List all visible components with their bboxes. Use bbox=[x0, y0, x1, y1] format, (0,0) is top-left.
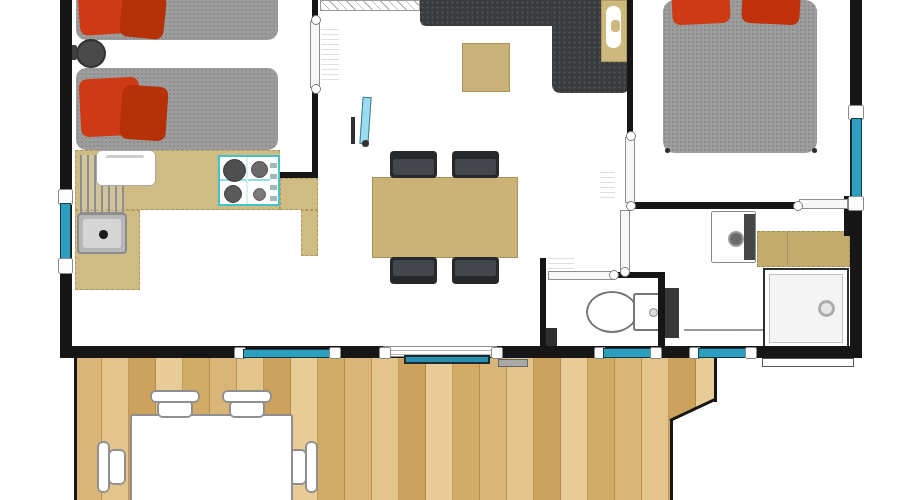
door-swing-hatch-bedroom-twin bbox=[321, 28, 339, 80]
hob-burner-4 bbox=[253, 188, 266, 201]
bedroom-double-door bbox=[799, 199, 848, 209]
outdoor-chair-top2-back bbox=[222, 390, 272, 403]
deck-edge-right-upper bbox=[714, 358, 717, 402]
tv bbox=[359, 97, 371, 145]
outdoor-table bbox=[130, 414, 293, 500]
dining-chair-4-seat bbox=[455, 260, 496, 276]
bathroom-door-pivot bbox=[620, 267, 630, 277]
bathroom-door bbox=[620, 210, 630, 270]
wall-left bbox=[60, 0, 72, 358]
vanity-counter-divider bbox=[787, 233, 788, 265]
coffee-table bbox=[462, 43, 510, 92]
window-right bbox=[851, 118, 862, 200]
hob-burner-1 bbox=[223, 159, 246, 182]
outdoor-chair-left-seat bbox=[108, 449, 126, 485]
dining-chair-4 bbox=[452, 257, 499, 284]
hall-door bbox=[625, 137, 635, 203]
door-swing-hatch-hall bbox=[600, 172, 615, 198]
wc-door bbox=[548, 271, 613, 280]
hob-burner-2 bbox=[251, 161, 268, 178]
wall-shelf bbox=[320, 0, 420, 11]
dining-chair-1 bbox=[390, 151, 437, 178]
wall-wc-right bbox=[658, 272, 665, 346]
single-bed-1-pillow-2 bbox=[119, 0, 167, 40]
shower bbox=[763, 268, 849, 349]
bedroom-twin-door-pivot-bottom bbox=[311, 84, 321, 94]
shower-drain bbox=[818, 300, 835, 317]
hob-knobs bbox=[270, 159, 277, 201]
deck-edge-left bbox=[74, 358, 77, 500]
wall-bedroom-double bbox=[627, 0, 633, 135]
washbasin-tap bbox=[728, 231, 744, 247]
window-left bbox=[60, 203, 71, 262]
floor-plan bbox=[0, 0, 900, 500]
double-bed-foot-left bbox=[665, 148, 670, 153]
dining-chair-1-seat bbox=[393, 159, 434, 175]
bedroom-twin-door-pivot-top bbox=[311, 15, 321, 25]
wall-kitchen-stub bbox=[280, 172, 318, 178]
single-bed-2-pillow-2 bbox=[119, 84, 169, 141]
double-bed-pillow-right bbox=[741, 0, 801, 25]
window-bottom-1 bbox=[243, 349, 333, 358]
outdoor-chair-left-back bbox=[97, 441, 110, 493]
toilet-bowl bbox=[586, 291, 638, 333]
dining-chair-3 bbox=[390, 257, 437, 284]
kitchen-counter-right bbox=[280, 178, 318, 210]
sliding-bay-cap-left bbox=[379, 347, 391, 359]
bedside-stool bbox=[76, 39, 106, 68]
outdoor-chair-top1-back bbox=[150, 390, 200, 403]
sliding-door-panel bbox=[404, 355, 490, 364]
bedroom-twin-door bbox=[310, 21, 320, 88]
double-bed-foot-right bbox=[812, 148, 817, 153]
window-left-frame-bottom bbox=[58, 258, 73, 274]
tv-mount bbox=[351, 117, 355, 144]
hall-door-pivot-top bbox=[626, 131, 636, 141]
sliding-bay-cap-right bbox=[491, 347, 503, 359]
entry-step bbox=[498, 359, 528, 367]
kitchen-appliance-handle bbox=[106, 155, 144, 158]
dining-chair-2-seat bbox=[455, 159, 496, 175]
deck-edge-right-lower bbox=[670, 420, 673, 500]
rear-step bbox=[762, 358, 854, 367]
double-bed-pillow-left bbox=[671, 0, 731, 25]
window-right-frame-bottom bbox=[848, 196, 864, 211]
wc-door-pivot bbox=[609, 270, 619, 280]
window-bottom-2 bbox=[603, 348, 653, 358]
kitchen-counter-return bbox=[301, 210, 318, 256]
shower-screen bbox=[684, 329, 763, 331]
corner-side-table-tray-notch bbox=[611, 20, 620, 32]
tv-stand bbox=[362, 140, 369, 147]
wall-wc-left bbox=[540, 258, 546, 346]
window-bottom-3 bbox=[698, 348, 748, 358]
corner-sofa-top bbox=[420, 0, 557, 26]
window-b1-frame-right bbox=[329, 347, 341, 359]
wall-bedroom-double-bottom bbox=[630, 202, 797, 209]
window-b2-frame-right bbox=[650, 347, 662, 359]
outdoor-chair-right-back bbox=[305, 441, 318, 493]
bedroom-double-door-pivot bbox=[793, 201, 803, 211]
washbasin-panel bbox=[744, 214, 755, 260]
gas-hob-divider bbox=[246, 157, 248, 204]
dining-chair-3-seat bbox=[393, 260, 434, 276]
wall-bedroom-twin-lower bbox=[312, 88, 318, 178]
toilet-flush-button bbox=[649, 308, 658, 317]
window-b3-frame-right bbox=[745, 347, 757, 359]
dining-table bbox=[372, 177, 518, 258]
vanity-counter bbox=[757, 231, 850, 267]
hob-burner-3 bbox=[224, 185, 242, 203]
wc-wall-cabinet bbox=[665, 288, 679, 338]
kitchen-sink-drain bbox=[99, 230, 108, 239]
door-swing-hatch-wc bbox=[548, 258, 574, 269]
dining-chair-2 bbox=[452, 151, 499, 178]
